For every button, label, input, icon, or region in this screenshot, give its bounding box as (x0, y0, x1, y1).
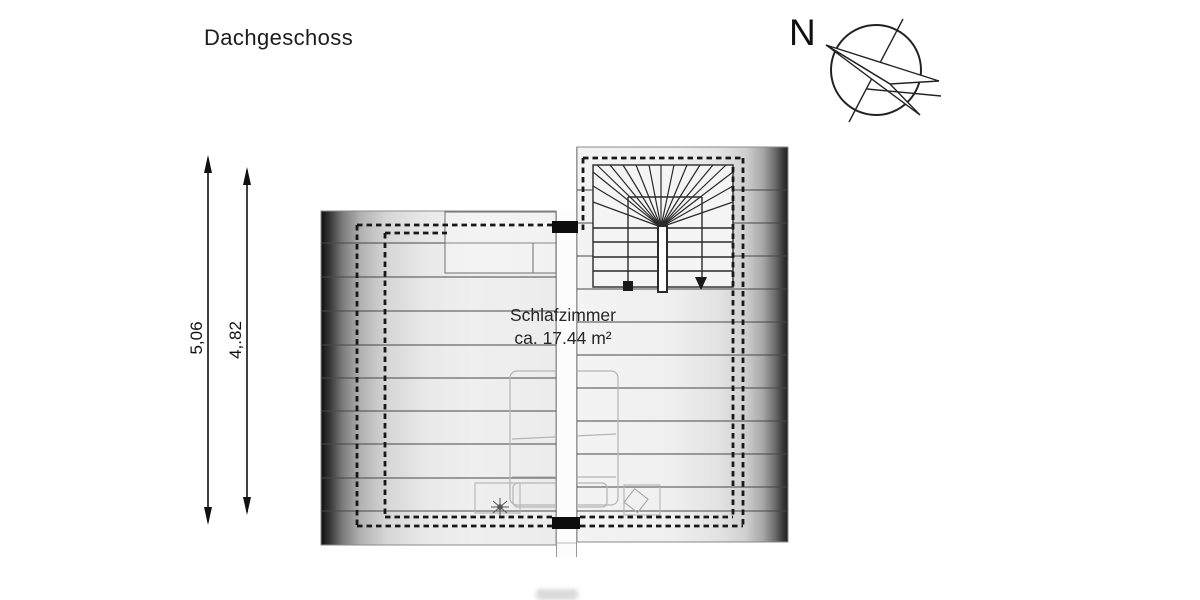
spiral-staircase (593, 165, 733, 292)
room-name-label: Schlafzimmer (443, 305, 683, 326)
floorplan-page: Dachgeschoss N 5,06 4,.82 Schlafzimmer c… (0, 0, 1200, 600)
stair-handrail (658, 226, 667, 292)
dimension-label-inner: 4,.82 (226, 300, 246, 380)
dimension-label-outer: 5,06 (187, 298, 207, 378)
clipped-dimension-smudge (536, 589, 578, 600)
closet (445, 212, 556, 273)
room-area-label: ca. 17.44 m² (443, 328, 683, 349)
floorplan-drawing (0, 0, 1200, 600)
compass-north-label: N (789, 12, 816, 54)
stair-start-marker (623, 281, 633, 291)
compass-north-arrow-icon (826, 19, 941, 122)
ridge-strip (557, 147, 577, 557)
page-title: Dachgeschoss (204, 25, 353, 51)
